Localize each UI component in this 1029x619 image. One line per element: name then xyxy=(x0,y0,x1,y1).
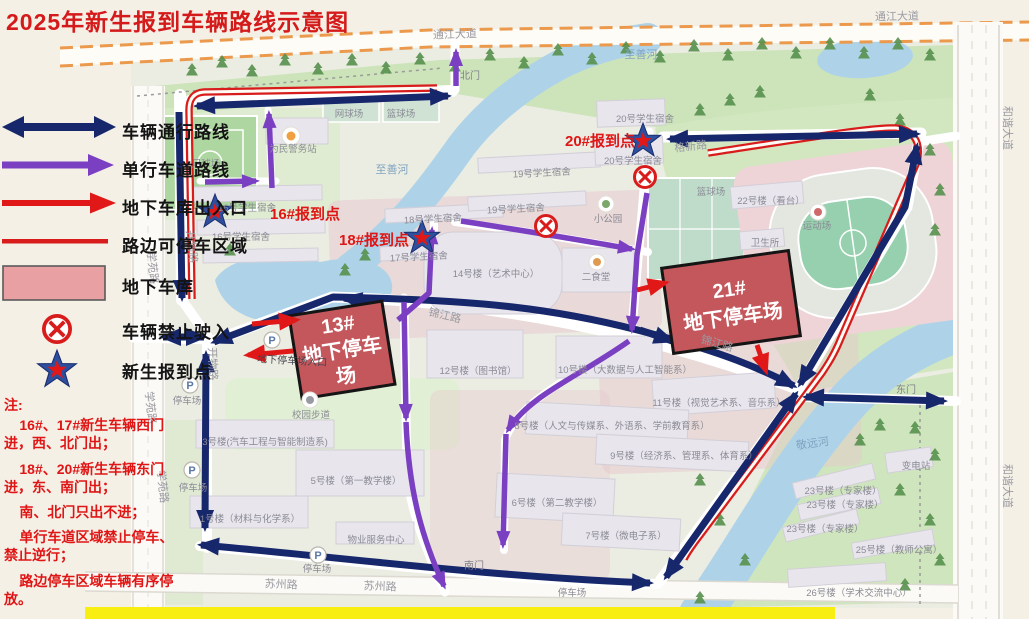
map-label-pl-b10: 10号楼（大数据与人工智能系） xyxy=(558,364,692,376)
note-line: 18#、20#新生车辆东门进，东、南门出； xyxy=(4,460,176,496)
map-label-pl-b5: 5号楼（第一教学楼） xyxy=(311,475,402,487)
legend-label-underground-garage: 地下车库 xyxy=(122,273,194,298)
map-label-pl-b23-2: 23号楼（专家楼） xyxy=(806,499,883,511)
map-label-pl-property: 物业服务中心 xyxy=(347,534,405,546)
campus-route-map-page: P xyxy=(0,0,1029,619)
map-label-pl-b11: 11号楼（视觉艺术系、音乐系） xyxy=(652,397,785,409)
map-label-pl-police: 为民警务站 xyxy=(269,143,317,155)
parking-p-icon-3 xyxy=(310,547,326,563)
map-label-pl-substation: 变电站 xyxy=(902,460,931,472)
legend-label-roadside-parking: 路边可停车区域 xyxy=(122,232,248,257)
legend-label-no-entry: 车辆禁止驶入 xyxy=(122,318,230,343)
note-line: 单行车道区域禁止停车、禁止逆行； xyxy=(4,528,176,564)
legend-item-underground-garage: 地下车库 xyxy=(0,262,194,308)
garage-13-box: 13# 地下停车 场 xyxy=(289,301,395,399)
parking-p-icon-1 xyxy=(184,462,200,478)
legend-label-two-way: 车辆通行路线 xyxy=(122,118,230,143)
map-label-gate-north: 北门 xyxy=(460,69,480,82)
map-label-pl-b1: 1号楼（材料与化学系） xyxy=(200,513,300,525)
legend-item-garage-access: 地下车库出入口 xyxy=(0,186,248,226)
legend-item-no-entry: 车辆禁止驶入 xyxy=(0,310,230,350)
no-entry-1 xyxy=(536,216,557,237)
map-label-pl-b8: 8号楼（人文与传媒系、外语系、学前教育系） xyxy=(514,420,709,432)
map-label-pl-walkway: 校园步道 xyxy=(292,409,331,421)
map-label-pl-b25: 25号楼（教师公寓） xyxy=(856,544,943,556)
map-label-checkin-16-label: 16#报到点 xyxy=(270,206,340,223)
note-line: 路边停车区域车辆有序停放。 xyxy=(4,572,176,608)
map-label-pl-parking-1: 停车场 xyxy=(173,395,202,407)
map-label-pl-clinic: 卫生所 xyxy=(751,237,780,249)
map-label-pl-parking-4: 停车场 xyxy=(558,587,587,599)
map-label-gate-east: 东门 xyxy=(896,383,916,396)
legend-label-garage-access: 地下车库出入口 xyxy=(122,194,248,219)
map-label-pl-b26: 26号楼（学术交流中心） xyxy=(806,587,912,599)
map-label-pl-parking-3: 停车场 xyxy=(303,563,332,575)
map-label-pl-b23-1: 23号楼（专家楼） xyxy=(804,485,881,497)
legend-item-checkin-point: 新生报到点 xyxy=(0,348,212,392)
map-label-pl-basket-2: 篮球场 xyxy=(697,186,726,198)
canteen-icon xyxy=(589,254,605,270)
map-label-checkin-20-label: 20#报到点 xyxy=(565,133,635,150)
map-label-road-hexie-2: 和谐大道 xyxy=(1001,464,1015,508)
note-line: 16#、17#新生车辆西门进，西、北门出； xyxy=(4,416,176,452)
legend-label-checkin-point: 新生报到点 xyxy=(122,358,212,383)
police-station-icon xyxy=(282,127,300,145)
map-label-pl-tennis: 网球场 xyxy=(335,108,364,120)
map-label-river-zhishan-1: 至善河 xyxy=(376,162,409,176)
map-label-pl-park-small: 小公园 xyxy=(594,214,623,225)
page-title: 2025年新生报到车辆路线示意图 xyxy=(6,3,349,37)
map-label-pl-parking-2: 停车场 xyxy=(179,482,208,494)
map-label-pl-b3: 3号楼(汽车工程与智能制造系) xyxy=(202,436,328,448)
map-label-pl-b12: 12号楼（图书馆） xyxy=(439,365,516,377)
legend-label-one-way: 单行车道路线 xyxy=(122,156,230,181)
map-label-road-tongjiang-1: 通江大道 xyxy=(433,26,477,42)
map-label-gate-south: 南门 xyxy=(464,559,484,572)
map-label-pl-basket-1: 篮球场 xyxy=(387,108,416,120)
yellow-strip xyxy=(85,607,835,619)
parking-p-icon-2 xyxy=(264,332,280,348)
notes-heading: 注: xyxy=(4,396,176,414)
map-label-road-tongjiang-2: 通江大道 xyxy=(875,9,919,24)
svg-text:场: 场 xyxy=(334,363,357,389)
no-entry-2 xyxy=(635,167,656,188)
map-label-river-zhishan-2: 至善河 xyxy=(625,47,658,61)
map-label-pl-b23-3: 23号楼（专家楼） xyxy=(786,523,863,535)
map-label-road-suzhou-2: 苏州路 xyxy=(363,579,396,593)
note-line: 南、北门只出不进； xyxy=(4,503,176,521)
walkway-icon xyxy=(302,392,318,408)
park-icon xyxy=(598,196,614,212)
map-label-pl-b9: 9号楼（经济系、管理系、体育系） xyxy=(610,450,758,462)
garage-21-box: 21# 地下停车场 xyxy=(662,251,801,354)
map-label-pl-b14: 14号楼（艺术中心） xyxy=(453,268,540,280)
legend-item-two-way: 车辆通行路线 xyxy=(0,110,230,150)
map-label-pl-canteen2: 二食堂 xyxy=(582,271,611,283)
map-label-road-hexie-1: 和谐大道 xyxy=(1001,106,1015,150)
stadium-icon xyxy=(810,204,826,220)
map-label-pl-b7: 7号楼（微电子系） xyxy=(585,530,666,542)
svg-text:21#: 21# xyxy=(711,277,747,303)
legend-item-roadside-parking: 路边可停车区域 xyxy=(0,224,248,264)
road-hexie-band xyxy=(953,22,1003,619)
map-label-pl-b6: 6号楼（第二教学楼） xyxy=(512,497,603,509)
map-label-pl-dorm20-2: 20号学生宿舍 xyxy=(604,155,663,167)
map-label-checkin-18-label: 18#报到点 xyxy=(339,232,409,249)
map-label-pl-dorm20-1: 20号学生宿舍 xyxy=(616,113,675,125)
map-label-road-suzhou-1: 苏州路 xyxy=(264,577,297,591)
map-label-pl-stadium: 运动场 xyxy=(803,221,832,232)
map-label-pl-b22: 22号楼（看台） xyxy=(737,195,805,207)
notes: 注: 16#、17#新生车辆西门进，西、北门出； 18#、20#新生车辆东门进，… xyxy=(4,396,176,615)
legend-item-one-way: 单行车道路线 xyxy=(0,148,230,188)
